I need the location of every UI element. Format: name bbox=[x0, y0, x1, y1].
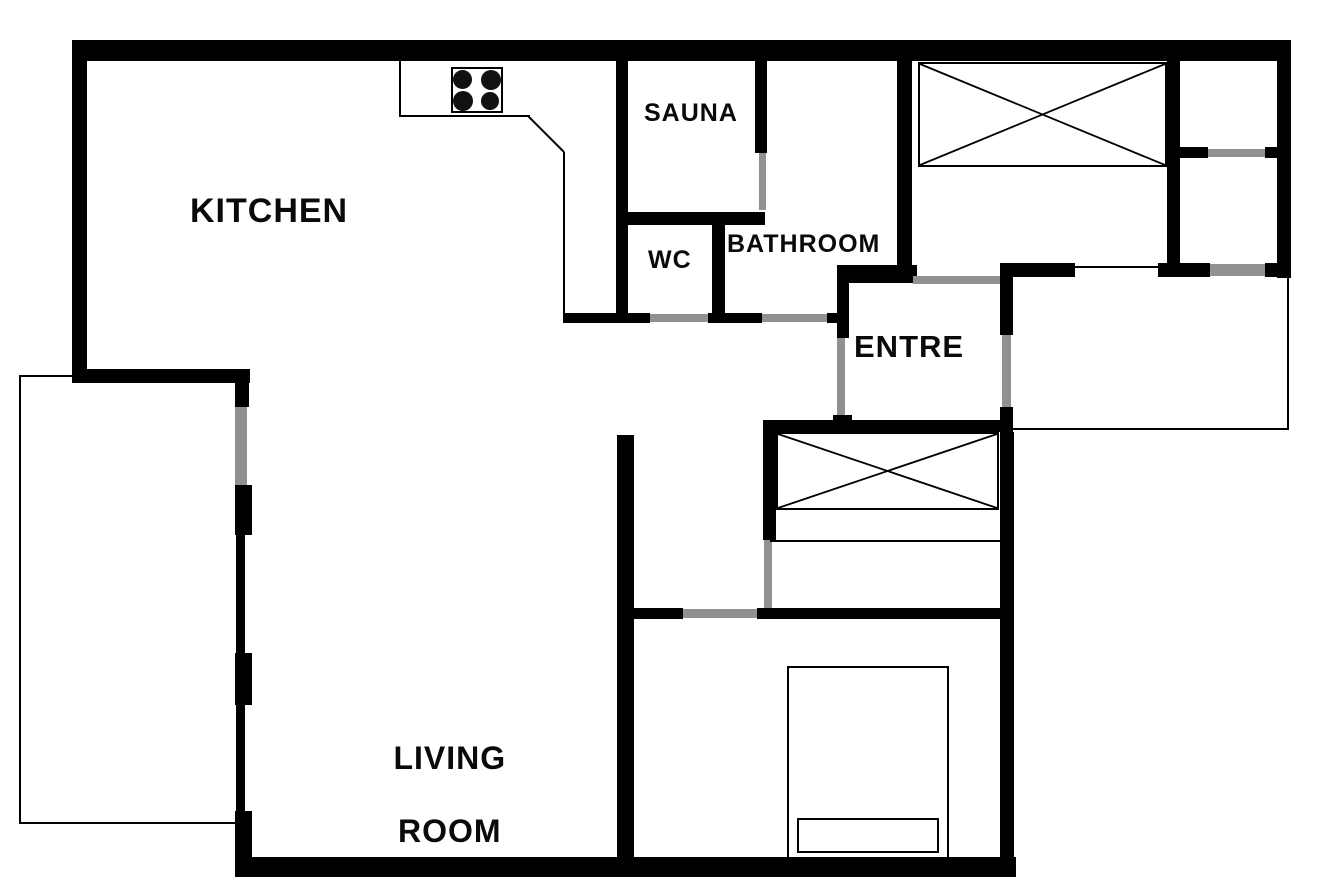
wall-bedroom-top-1 bbox=[634, 608, 683, 619]
stove-burner-icon bbox=[453, 91, 473, 111]
room-label-bathroom: BATHROOM bbox=[727, 230, 880, 259]
bed-footboard-icon bbox=[797, 818, 939, 853]
wall-bathroom-right bbox=[897, 61, 912, 277]
wall-entre-right-lower bbox=[1000, 407, 1013, 432]
door-bathroom bbox=[762, 314, 827, 322]
room-label-kitchen: KITCHEN bbox=[190, 192, 348, 231]
wall-topright-divider-1 bbox=[1175, 147, 1208, 158]
balcony-left-outline-left bbox=[19, 375, 21, 824]
living-room-label-line2: ROOM bbox=[398, 813, 502, 849]
living-room-label-line1: LIVING bbox=[393, 740, 506, 776]
wall-entre-top bbox=[837, 265, 917, 283]
balcony-right-outline-top bbox=[1075, 266, 1158, 268]
wall-living-left-window-1 bbox=[236, 535, 245, 653]
counter-edge-right bbox=[563, 152, 565, 313]
door-sauna bbox=[759, 153, 766, 210]
closet-shelf-line bbox=[770, 540, 1003, 542]
wall-balcony-top bbox=[72, 369, 250, 383]
wall-kitchen-right bbox=[616, 58, 628, 313]
wall-living-left-4 bbox=[235, 811, 252, 861]
outer-wall-top bbox=[72, 40, 1291, 61]
room-label-entre: ENTRE bbox=[854, 329, 964, 365]
wardrobe-crossed-box-top-right bbox=[918, 62, 1167, 167]
door-entre-right bbox=[1002, 335, 1011, 407]
wall-topright-bottom-1 bbox=[1000, 263, 1075, 277]
outer-wall-left-kitchen bbox=[72, 61, 87, 372]
stove-burner-icon bbox=[481, 70, 501, 90]
counter-edge-left bbox=[399, 61, 401, 117]
balcony-left-outline-top bbox=[19, 375, 72, 377]
wall-living-left-1 bbox=[235, 383, 249, 407]
door-entre-left bbox=[837, 338, 845, 417]
stove-burner-icon bbox=[453, 70, 472, 89]
wall-entre-bottom bbox=[763, 420, 1013, 432]
wall-living-left-3 bbox=[235, 653, 252, 705]
outer-wall-right bbox=[1277, 61, 1291, 278]
room-label-living-room: LIVING ROOM bbox=[340, 703, 520, 887]
wardrobe-crossed-box-hall bbox=[776, 432, 999, 510]
door-living-balcony bbox=[235, 407, 247, 485]
door-closet bbox=[764, 540, 772, 608]
wall-topright-divider-2 bbox=[1265, 147, 1277, 158]
wall-wc-bathroom-divider bbox=[712, 220, 725, 313]
wall-hall-top-2 bbox=[708, 313, 762, 323]
wall-topright-bottom-2 bbox=[1158, 263, 1210, 277]
wall-bedroom-top-2 bbox=[757, 608, 1000, 619]
balcony-left-outline-bottom bbox=[19, 822, 237, 824]
wall-hall-top-1 bbox=[563, 313, 650, 323]
stove-burner-icon bbox=[481, 92, 499, 110]
balcony-right-outline-bottom bbox=[1013, 428, 1289, 430]
wall-topright-left bbox=[1167, 55, 1180, 263]
door-entre-top bbox=[913, 276, 1000, 284]
wall-central bbox=[617, 435, 634, 877]
room-label-wc: WC bbox=[648, 246, 692, 275]
wall-sauna-right bbox=[755, 58, 767, 153]
wall-bedroom-right bbox=[1000, 432, 1014, 877]
wall-living-left-2 bbox=[235, 485, 252, 535]
room-label-sauna: SAUNA bbox=[644, 99, 738, 128]
door-topright-divider bbox=[1208, 149, 1265, 157]
counter-edge-bottom bbox=[399, 115, 530, 117]
balcony-right-outline-right bbox=[1287, 277, 1289, 430]
wall-sauna-bottom bbox=[628, 212, 765, 225]
wall-closet-left bbox=[763, 421, 776, 540]
door-wc bbox=[650, 314, 708, 322]
door-topright-bottom bbox=[1210, 264, 1265, 276]
wall-living-left-window-2 bbox=[236, 705, 245, 811]
wall-topright-bottom-3 bbox=[1265, 263, 1291, 277]
door-bedroom bbox=[683, 609, 757, 618]
floor-plan: KITCHEN SAUNA WC BATHROOM ENTRE LIVING R… bbox=[0, 0, 1341, 896]
